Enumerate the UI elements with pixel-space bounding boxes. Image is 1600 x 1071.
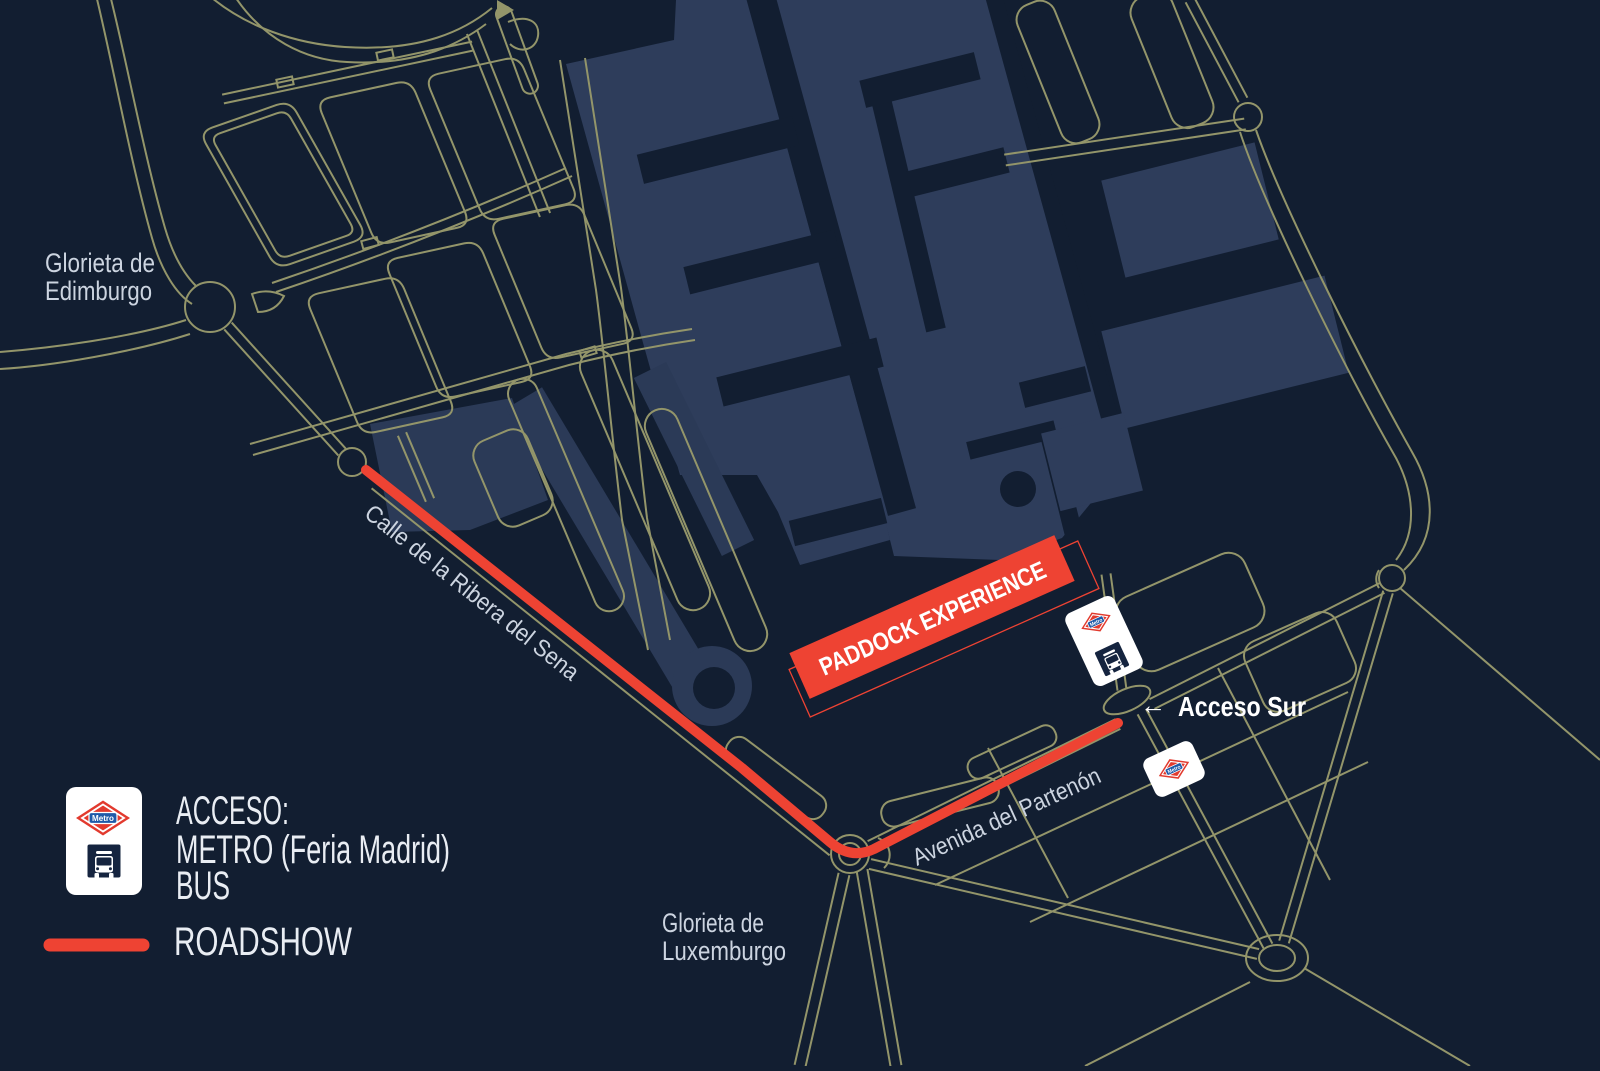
svg-text:ACCESO:: ACCESO: bbox=[176, 789, 289, 833]
svg-text:BUS: BUS bbox=[176, 864, 230, 908]
svg-text:ROADSHOW: ROADSHOW bbox=[174, 920, 352, 964]
svg-text:Glorieta de: Glorieta de bbox=[45, 248, 155, 278]
svg-text:Glorieta de: Glorieta de bbox=[662, 908, 764, 938]
svg-text:Edimburgo: Edimburgo bbox=[45, 276, 152, 306]
svg-text:←: ← bbox=[1140, 690, 1166, 720]
svg-text:Metro: Metro bbox=[92, 813, 114, 823]
svg-text:Acceso Sur: Acceso Sur bbox=[1178, 691, 1306, 722]
svg-text:Luxemburgo: Luxemburgo bbox=[662, 936, 786, 966]
